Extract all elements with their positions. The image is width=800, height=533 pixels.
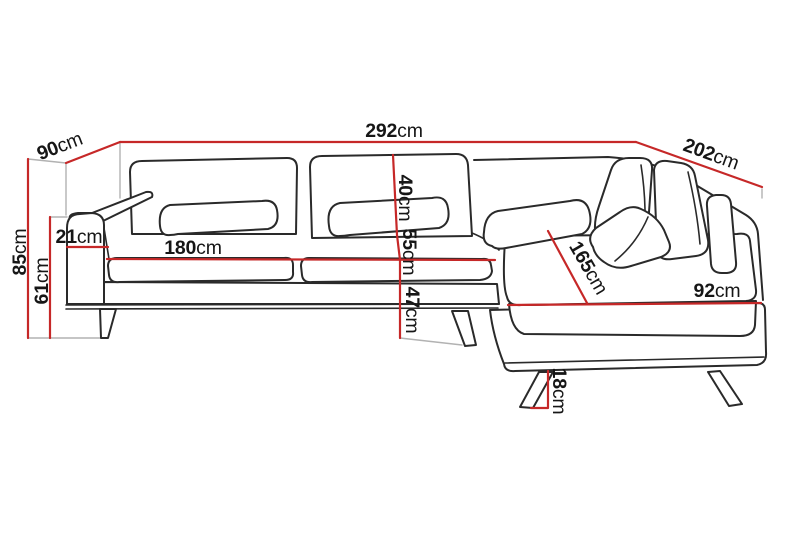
front-left-leg (100, 309, 116, 338)
corner-side-panel (707, 195, 736, 273)
lumbar-pillow-left (160, 201, 278, 235)
dim-seat-depth-label: 55cm (398, 229, 420, 276)
dim-seat-width-label: 180cm (164, 237, 222, 259)
seat-cushion-right (301, 258, 492, 282)
dim-armrest-height-label: 61cm (31, 258, 53, 305)
middle-leg (452, 311, 476, 346)
seat-cushion-left (108, 258, 293, 282)
dim-seat-height-label: 47cm (401, 287, 423, 334)
plinth-lip-top (66, 304, 499, 305)
dim-total-width-label: 292cm (365, 120, 423, 142)
dim-backrest-height-label: 40cm (394, 175, 416, 222)
diagram-canvas: 292cm 90cm 202cm 85cm 61cm 21cm 180cm 40… (0, 0, 800, 533)
chaise-cushion-face (509, 301, 756, 336)
plinth-lip-bottom (66, 308, 498, 309)
dim-leg-height-label: 18cm (548, 368, 570, 415)
dim-armrest-width-label: 21cm (56, 226, 103, 248)
dimension-line-seat-width (107, 259, 495, 260)
sofa-dimension-diagram: 292cm 90cm 202cm 85cm 61cm 21cm 180cm 40… (0, 0, 800, 533)
floor-line-middle (400, 338, 462, 345)
chaise-right-leg (708, 371, 742, 406)
dim-total-height-label: 85cm (9, 229, 31, 276)
base-plinth (104, 282, 499, 304)
dim-chaise-width-label: 92cm (694, 280, 741, 302)
